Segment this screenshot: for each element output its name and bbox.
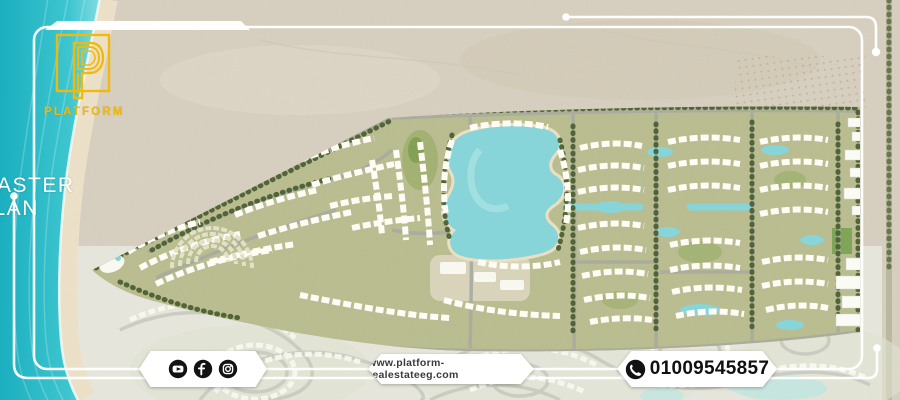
master-plan-line2: PLAN [0,197,75,220]
website-url: www.platform-realestateeg.com [368,354,534,384]
master-plan-line1: MASTER [0,174,75,197]
master-plan-label: MASTER PLAN [0,174,75,220]
platform-logo-word: PLATFORM [44,106,122,118]
masterplan-map [0,0,900,400]
platform-logo-mark [44,32,122,104]
platform-logo: PLATFORM [44,32,122,118]
masterplan-poster: MASTER PLAN P [0,0,900,400]
website-banner[interactable]: www.platform-realestateeg.com [368,354,534,384]
instagram-icon[interactable] [218,359,238,379]
phone-banner[interactable]: 01009545857 [617,351,777,387]
youtube-icon[interactable] [168,359,188,379]
phone-number: 01009545857 [650,358,770,380]
whatsapp-icon [625,359,646,380]
social-banner [139,351,267,387]
facebook-icon[interactable] [193,359,213,379]
